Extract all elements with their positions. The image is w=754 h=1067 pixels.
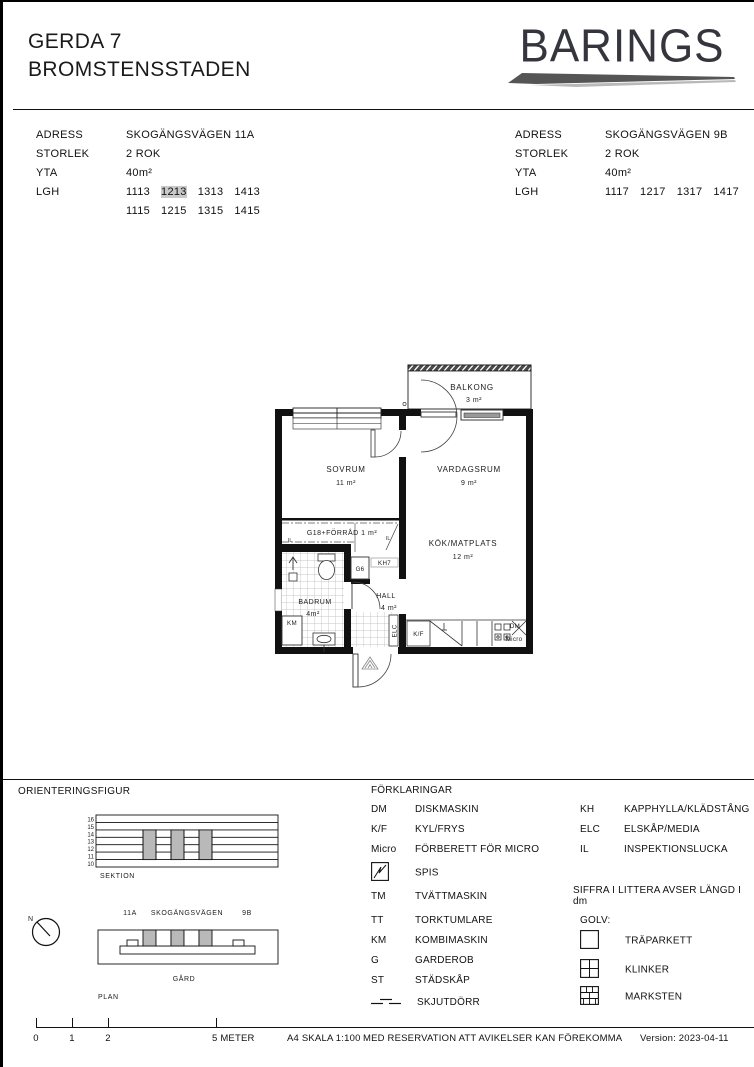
spis-icon	[371, 862, 389, 884]
room-area-badrum: 4m²	[306, 611, 320, 618]
info-label: ADRESS	[515, 129, 605, 141]
unit-info-right: ADRESSSKOGÄNGSVÄGEN 9B STORLEK2 ROK YTA4…	[515, 129, 750, 205]
traparkett-swatch	[580, 930, 599, 952]
legend-row-il: ILINSPEKTIONSLUCKA	[580, 844, 728, 855]
info-label: YTA	[36, 167, 126, 179]
sovrum-window	[293, 408, 381, 429]
wall-niche	[275, 589, 282, 611]
svg-text:10: 10	[87, 862, 94, 868]
lgh-number: 1413	[234, 186, 260, 198]
room-label-balkong: BALKONG	[450, 383, 494, 392]
legend-row-st: STSTÄDSKÅP	[371, 975, 470, 986]
info-row-storlek: STORLEK2 ROK	[36, 148, 271, 167]
fixture-label-elc: ELC	[392, 624, 399, 637]
golv-row-marksten: MARKSTEN	[580, 986, 682, 1008]
plan-label: PLAN	[98, 994, 119, 1001]
room-label-sovrum: SOVRUM	[326, 465, 365, 474]
floorplan-document-page: GERDA 7 BROMSTENSSTADEN BARINGS ADRESSSK…	[0, 0, 754, 1067]
info-label: ADRESS	[36, 129, 126, 141]
scale-tick-5	[216, 1018, 217, 1027]
golv-row-klinker: KLINKER	[580, 959, 669, 981]
legend-row-spis: SPIS	[371, 862, 439, 884]
scale-number: 0	[33, 1033, 38, 1044]
section-divider	[3, 779, 754, 780]
fixture-label-g6: G6	[356, 566, 365, 573]
north-label: N	[28, 916, 34, 923]
info-row-adress: ADRESSSKOGÄNGSVÄGEN 11A	[36, 129, 271, 148]
sovrum-door	[371, 430, 401, 457]
lgh-number: 1113	[126, 186, 150, 198]
room-area-kok: 12 m²	[453, 554, 474, 561]
balcony-railing	[408, 365, 531, 371]
lgh-number: 1217	[640, 186, 666, 198]
legend-row-micro: MicroFÖRBERETT FÖR MICRO	[371, 844, 539, 855]
brand-swoosh-icon	[506, 72, 738, 88]
gard-label: GÅRD	[173, 974, 196, 983]
room-area-sovrum: 11 m²	[336, 480, 356, 487]
lgh-number: 1215	[161, 205, 187, 217]
room-label-vardagsrum: VARDAGSRUM	[437, 465, 501, 474]
lgh-number: 1415	[234, 205, 260, 217]
lgh-number: 1117	[605, 186, 629, 198]
fixture-label-km: KM	[287, 620, 297, 627]
legend-row-skjutdorr: SKJUTDÖRR	[371, 995, 480, 1010]
legend-row-elc: ELCELSKÅP/MEDIA	[580, 824, 700, 835]
toilet-bowl	[319, 561, 335, 580]
scale-number: 2	[105, 1033, 110, 1044]
info-row-lgh2: 1115121513151415	[36, 205, 271, 224]
svg-text:11: 11	[88, 855, 95, 861]
sink-cabinet	[430, 621, 462, 646]
svg-text:13: 13	[87, 840, 94, 846]
legend-row-g: GGARDEROB	[371, 955, 474, 966]
entrance-marker-icon	[362, 657, 378, 669]
fixture-label-dm: DM	[510, 623, 520, 630]
legend-row-dm: DMDISKMASKIN	[371, 804, 479, 815]
floor-numbers: 16 15 14 13 12 11 10	[87, 818, 94, 869]
marksten-swatch	[580, 986, 599, 1008]
info-value-yta: 40m²	[605, 167, 631, 179]
fixture-label-il: IL	[288, 538, 292, 544]
lgh-number: 1115	[126, 205, 150, 217]
golv-title: GOLV:	[580, 915, 610, 926]
scale-text: A4 SKALA 1:100	[287, 1033, 361, 1044]
legend-note: SIFFRA I LITTERA AVSER LÄNGD I dm	[573, 885, 754, 907]
version-text: Version: 2023-04-11	[640, 1033, 729, 1044]
svg-text:14: 14	[87, 832, 94, 838]
info-label: LGH	[515, 186, 605, 198]
legend-row-kh: KHKAPPHYLLA/KLÄDSTÅNG	[580, 804, 750, 815]
room-label-kok: KÖK/MATPLATS	[429, 539, 498, 548]
fixture-label-kh7: KH7	[378, 560, 391, 567]
entrance-label-right: 9B	[242, 910, 252, 917]
info-label: STORLEK	[515, 148, 605, 160]
info-value-storlek: 2 ROK	[605, 148, 640, 160]
legend-row-km: KMKOMBIMASKIN	[371, 935, 488, 946]
toilet-tank	[318, 554, 335, 561]
info-row-lgh: LGH1113121313131413	[36, 186, 271, 205]
legend-title: FÖRKLARINGAR	[371, 785, 452, 796]
fixture-label-micro: Micro	[506, 636, 523, 643]
plan-diagram	[98, 930, 278, 964]
info-label: YTA	[515, 167, 605, 179]
sliding-door-icon	[371, 995, 401, 1010]
room-label-hall: HALL	[376, 593, 396, 600]
sektion-diagram	[96, 815, 278, 867]
scale-number: 1	[69, 1033, 74, 1044]
header-divider	[13, 109, 754, 110]
room-area-vardagsrum: 9 m²	[461, 480, 477, 487]
entry-door	[353, 654, 391, 687]
scale-bar	[36, 1027, 754, 1028]
scale-tick-2	[108, 1018, 109, 1027]
scale-number-meter: 5 METER	[212, 1033, 255, 1044]
vardagsrum-window	[461, 410, 503, 420]
info-label: LGH	[36, 186, 126, 198]
floorplan-drawing: BALKONG 3 m²	[258, 357, 558, 697]
highlighted-floors	[143, 830, 212, 860]
info-row-yta: YTA40m²	[515, 167, 750, 186]
brand-logo: BARINGS	[502, 22, 742, 93]
lgh-number-highlighted: 1213	[161, 186, 187, 198]
project-subtitle: BROMSTENSSTADEN	[28, 56, 251, 84]
balcony: BALKONG 3 m²	[403, 365, 531, 409]
lgh-number: 1417	[713, 186, 739, 198]
lgh-number: 1313	[198, 186, 224, 198]
legend-row-tm: TMTVÄTTMASKIN	[371, 891, 487, 902]
info-row-adress: ADRESSSKOGÄNGSVÄGEN 9B	[515, 129, 750, 148]
info-value-storlek: 2 ROK	[126, 148, 161, 160]
info-label: STORLEK	[36, 148, 126, 160]
room-area-balkong: 3 m²	[466, 397, 482, 404]
room-label-badrum: BADRUM	[298, 599, 331, 606]
street-label: SKOGÄNGSVÄGEN	[151, 909, 223, 917]
fixture-label-il: IL	[386, 536, 390, 542]
info-value-adress: SKOGÄNGSVÄGEN 9B	[605, 129, 728, 141]
floor-drain	[289, 573, 297, 581]
lgh-number: 1315	[198, 205, 224, 217]
unit-info-left: ADRESSSKOGÄNGSVÄGEN 11A STORLEK2 ROK YTA…	[36, 129, 271, 224]
page-title: GERDA 7 BROMSTENSSTADEN	[28, 28, 251, 84]
golv-row-traparkett: TRÄPARKETT	[580, 930, 692, 952]
brand-wordmark: BARINGS	[502, 21, 742, 74]
info-row-lgh: LGH1117121713171417	[515, 186, 750, 205]
fixture-label-kf: K/F	[413, 631, 424, 638]
legend-row-tt: TTTORKTUMLARE	[371, 915, 493, 926]
scale-tick-1	[72, 1018, 73, 1027]
disclaimer-text: MED RESERVATION ATT AVIKELSER KAN FÖREKO…	[363, 1033, 622, 1044]
klinker-swatch	[580, 959, 599, 981]
info-value-adress: SKOGÄNGSVÄGEN 11A	[126, 129, 254, 141]
legend-row-kf: K/FKYL/FRYS	[371, 824, 465, 835]
sektion-label: SEKTION	[100, 873, 135, 880]
project-name: GERDA 7	[28, 28, 251, 56]
svg-text:16: 16	[87, 818, 94, 824]
room-label-forrad: G18+FÖRRÅD 1 m²	[307, 528, 377, 537]
lgh-number: 1317	[677, 186, 703, 198]
info-row-storlek: STORLEK2 ROK	[515, 148, 750, 167]
entrance-label-left: 11A	[123, 910, 137, 917]
info-value-yta: 40m²	[126, 167, 152, 179]
orientation-figure: 16 15 14 13 12 11 10 SEKTION N 11A	[3, 782, 383, 1027]
info-row-yta: YTA40m²	[36, 167, 271, 186]
room-area-hall: 4 m²	[381, 605, 397, 612]
svg-text:12: 12	[87, 847, 94, 853]
compass-icon: N	[28, 916, 60, 946]
svg-text:15: 15	[87, 825, 94, 831]
scale-tick-0	[36, 1018, 37, 1027]
